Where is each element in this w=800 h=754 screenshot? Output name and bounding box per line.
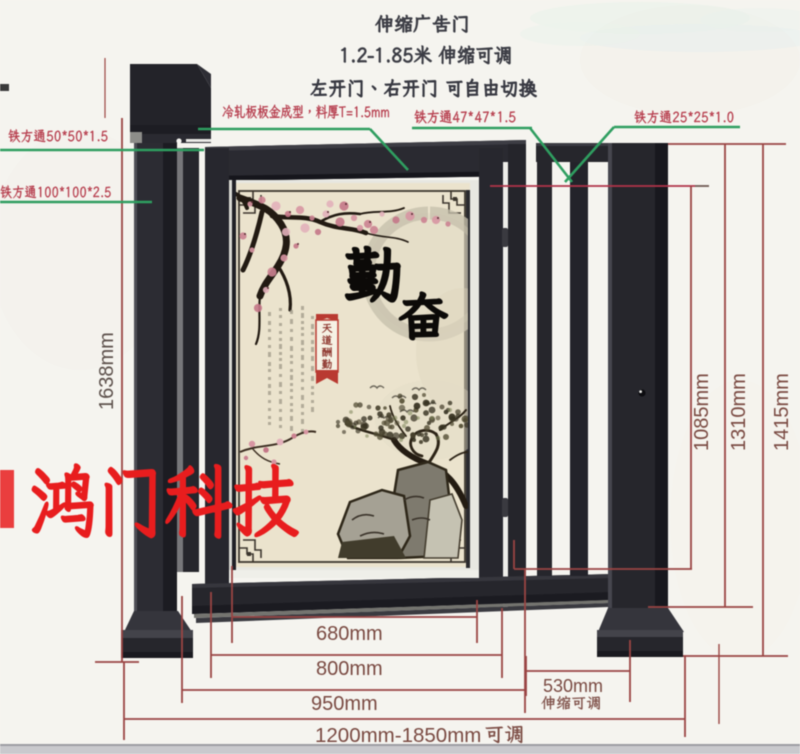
- svg-text:1085mm: 1085mm: [691, 373, 713, 451]
- svg-text:950mm: 950mm: [311, 693, 378, 715]
- svg-text:1638mm: 1638mm: [96, 332, 118, 410]
- svg-text:530mm: 530mm: [543, 676, 603, 696]
- svg-text:680mm: 680mm: [316, 623, 383, 645]
- svg-text:1200mm-1850mm: 1200mm-1850mm: [315, 724, 481, 747]
- svg-text:1310mm: 1310mm: [728, 373, 750, 451]
- svg-text:800mm: 800mm: [316, 658, 383, 680]
- svg-text:1415mm: 1415mm: [771, 373, 793, 451]
